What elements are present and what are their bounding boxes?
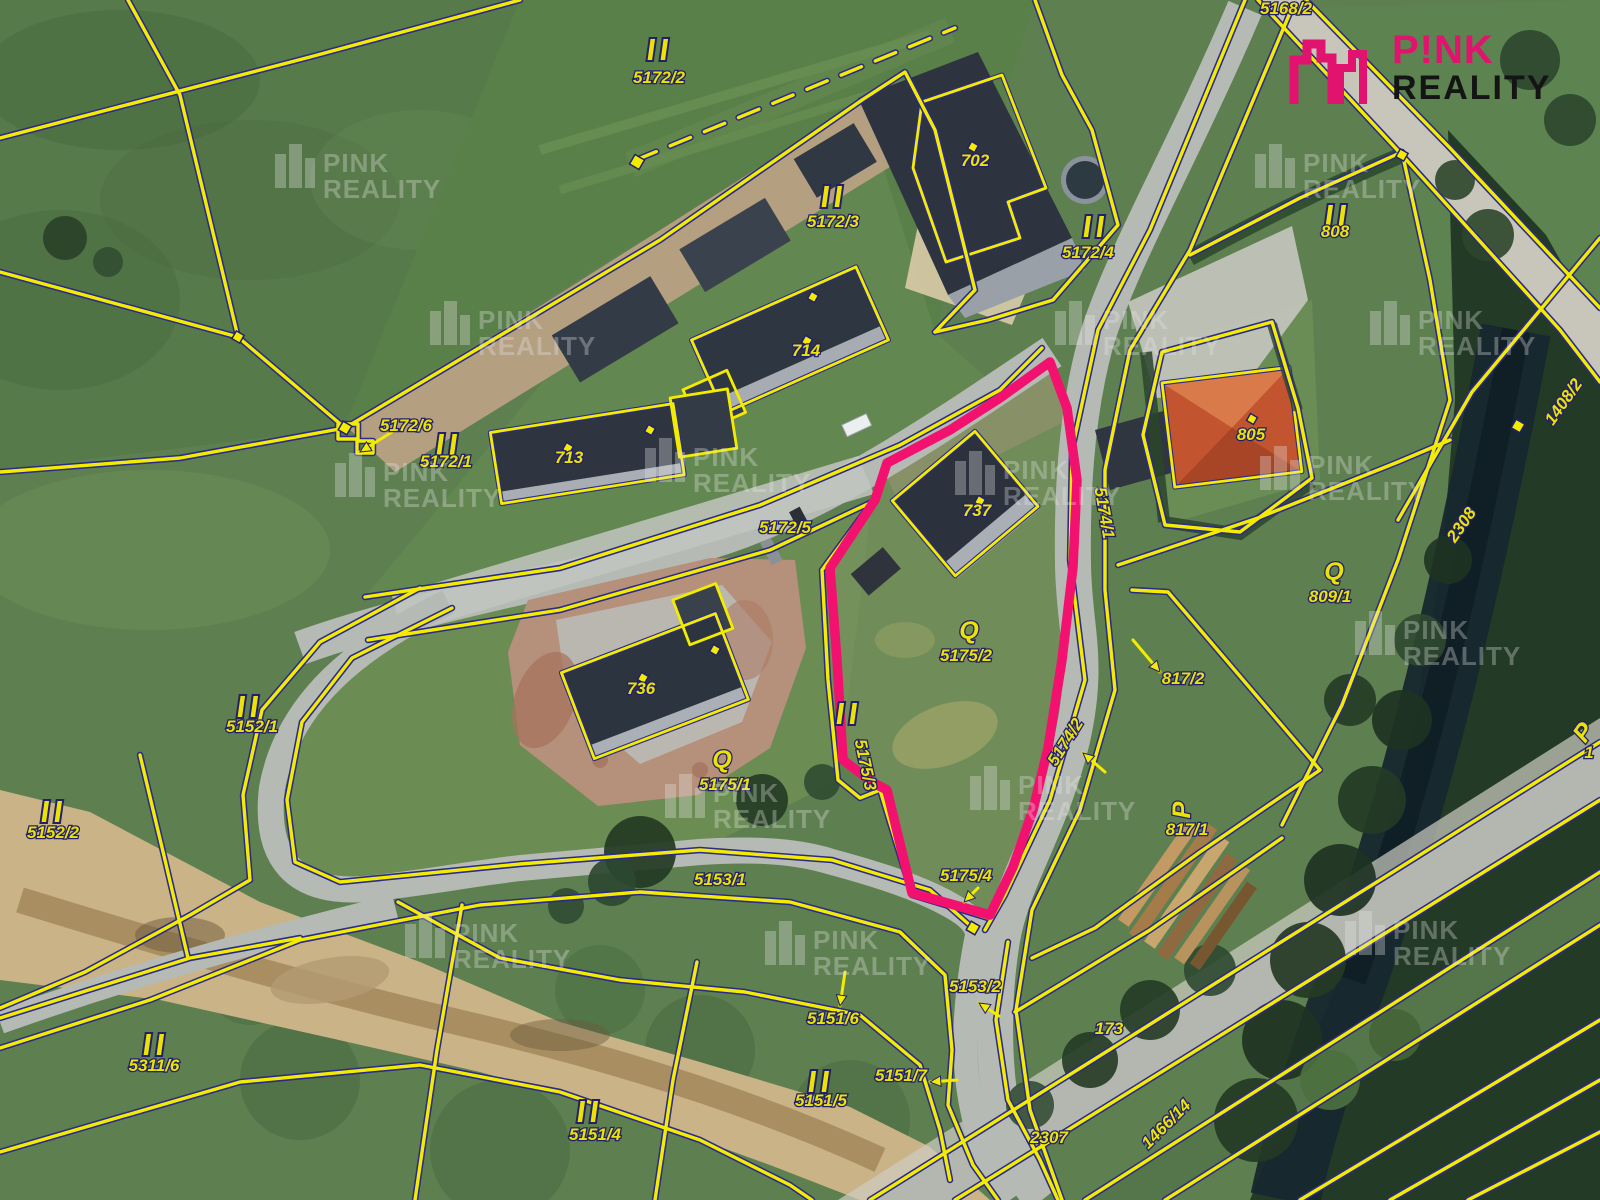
watermark-icon [1274,446,1287,490]
parcel-label: 702 [961,151,990,170]
landuse-symbol: Q [712,746,732,774]
watermark-text: REALITY [1403,641,1521,671]
parcel-label: 5172/6 [380,416,433,435]
logo-text-bottom: REALITY [1392,69,1551,107]
watermark-icon [435,928,445,958]
watermark-icon [1085,315,1095,345]
parcel-label: 5172/2 [633,68,686,87]
watermark-icon [1285,158,1295,188]
watermark-text: REALITY [1018,796,1136,826]
parcel-label: 5311/6 [129,1056,180,1075]
watermark-icon [1255,154,1266,188]
watermark-icon [1000,780,1010,810]
watermark-text: REALITY [1418,331,1536,361]
parcel-label: 1 [1584,743,1593,762]
watermark-text: REALITY [713,804,831,834]
watermark-icon [405,924,416,958]
watermark-icon [1375,925,1385,955]
watermark-icon [1269,144,1282,188]
watermark-icon [779,921,792,965]
map-canvas: QQQPP 5168/25172/27025172/35172/48087145… [0,0,1600,1200]
parcel-label: 5153/2 [949,977,1002,996]
landuse-symbol: P [1168,801,1196,818]
parcel-label: 5172/4 [1062,243,1115,262]
watermark-icon [969,451,982,495]
watermark-text: REALITY [813,951,931,981]
watermark-text: REALITY [1393,941,1511,971]
parcel-label: 736 [627,679,656,698]
watermark-icon [659,438,672,482]
parcel-label: 805 [1237,425,1266,444]
watermark-icon [1369,611,1382,655]
parcel-label: 5151/6 [807,1009,860,1028]
watermark-text: REALITY [1303,174,1421,204]
watermark-text: REALITY [383,483,501,513]
watermark-icon [419,914,432,958]
watermark-icon [970,776,981,810]
watermark-icon [675,452,685,482]
parcel-label: 737 [963,501,993,520]
parcel-label: 714 [792,341,821,360]
watermark-text: REALITY [1103,331,1221,361]
watermark-icon [645,448,656,482]
watermark-text: REALITY [323,174,441,204]
watermark-icon [665,784,676,818]
landuse-symbol: Q [1324,558,1344,586]
watermark-icon [1290,460,1300,490]
parcel-label: 5151/7 [875,1066,929,1085]
parcel-label: 817/1 [1166,820,1209,839]
watermark-icon [765,931,776,965]
parcel-label: 5151/4 [569,1125,622,1144]
parcel-label: 5172/5 [759,518,812,537]
parcel-label: 2307 [1029,1128,1069,1147]
watermark-icon [1384,301,1397,345]
watermark-icon [1400,315,1410,345]
watermark-icon [289,144,302,188]
parcel-label: 713 [555,448,584,467]
watermark-icon [679,774,692,818]
parcel-label: 5168/2 [1260,0,1313,18]
parcel-label: 5175/2 [940,646,993,665]
watermark-icon [795,935,805,965]
landuse-symbol: Q [959,617,979,645]
watermark-icon [1345,921,1356,955]
watermark-text: REALITY [478,331,596,361]
watermark-icon [460,315,470,345]
parcel-label: 808 [1321,222,1350,241]
parcel-label: 173 [1095,1019,1124,1038]
watermark-icon [1055,311,1066,345]
parcel-label: 5151/5 [795,1091,848,1110]
parcel-label: 5172/3 [807,212,860,231]
parcel-label: 817/2 [1162,669,1205,688]
watermark-icon [1260,456,1271,490]
parcel-label: 5153/1 [694,870,746,889]
watermark-icon [349,453,362,497]
watermark-icon [1370,311,1381,345]
logo-text-top: P!NK [1392,28,1494,72]
watermark-icon [335,463,346,497]
watermark-icon [984,766,997,810]
watermark-text: REALITY [453,944,571,974]
parcel-label: 5152/2 [27,823,80,842]
watermark-icon [1355,621,1366,655]
watermark-text: REALITY [1308,476,1426,506]
watermark-icon [430,311,441,345]
watermark-icon [365,467,375,497]
watermark-icon [275,154,286,188]
parcel-label: 5152/1 [226,717,278,736]
watermark-icon [695,788,705,818]
watermark-icon [444,301,457,345]
watermark-icon [1359,911,1372,955]
watermark-icon [305,158,315,188]
watermark-text: REALITY [693,468,811,498]
parcel-label: 5175/4 [940,866,993,885]
aerial-cadastral-map: QQQPP 5168/25172/27025172/35172/48087145… [0,0,1600,1200]
watermark-text: REALITY [1003,481,1121,511]
parcel-label: 809/1 [1309,587,1352,606]
watermark-icon [1069,301,1082,345]
watermark-icon [955,461,966,495]
watermark-icon [1385,625,1395,655]
watermark-icon [985,465,995,495]
